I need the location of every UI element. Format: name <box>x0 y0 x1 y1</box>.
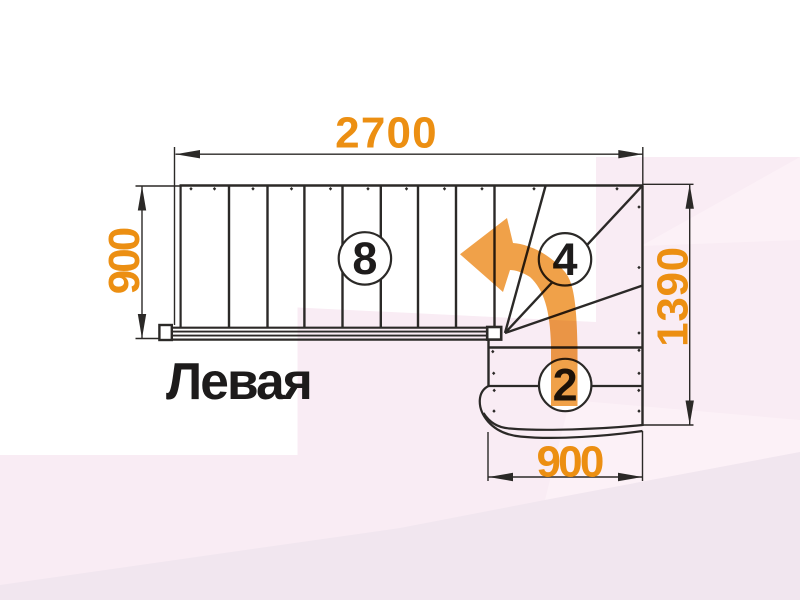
svg-text:900: 900 <box>100 228 149 294</box>
svg-text:Левая: Левая <box>166 352 311 410</box>
svg-text:8: 8 <box>352 233 377 284</box>
svg-text:900: 900 <box>536 438 602 487</box>
svg-text:2700: 2700 <box>335 108 438 157</box>
svg-text:1390: 1390 <box>648 246 697 347</box>
